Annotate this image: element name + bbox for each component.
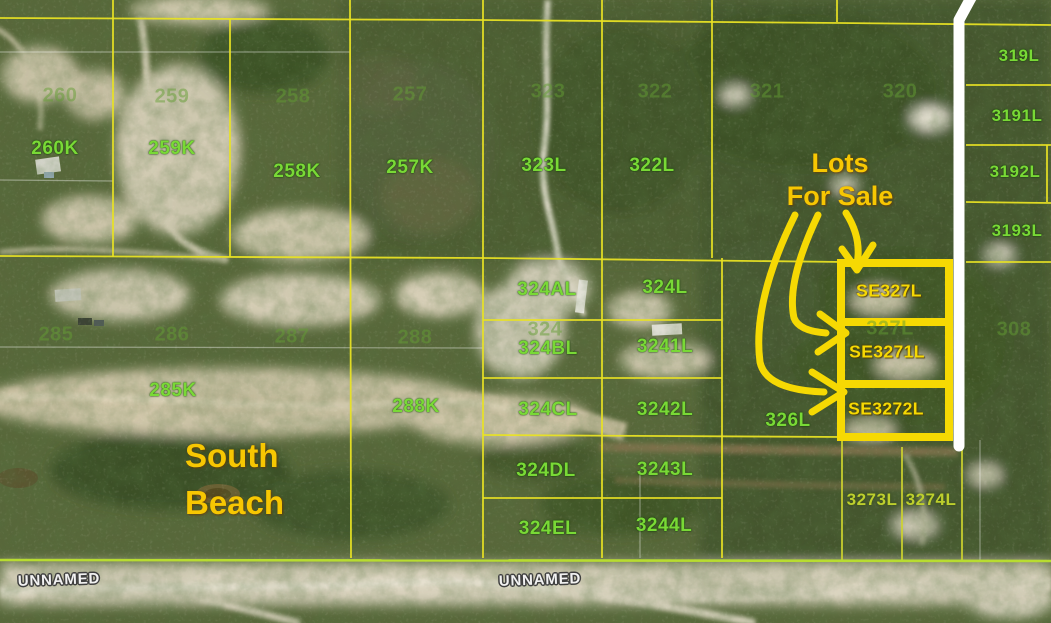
parcel-boundaries-layer: [0, 0, 1051, 623]
road-boundary-line: [0, 560, 1051, 561]
white-band: [959, 0, 972, 446]
south-beach-line2: Beach: [185, 479, 284, 526]
highlight-box-sale-lots: [841, 263, 949, 437]
south-beach-label: South Beach: [185, 432, 284, 526]
right-strip-lines: [966, 85, 1051, 262]
lots-for-sale-line2: For Sale: [787, 180, 894, 213]
lots-for-sale-label: Lots For Sale: [787, 147, 894, 213]
lots-for-sale-line1: Lots: [787, 147, 894, 180]
south-beach-line1: South: [185, 432, 284, 479]
strip-lines: [842, 437, 962, 561]
survey-grid: [0, 52, 980, 562]
aerial-parcel-map: 2602592582573233223213202852862872883243…: [0, 0, 1051, 623]
parcel-lines: [0, 0, 1051, 558]
